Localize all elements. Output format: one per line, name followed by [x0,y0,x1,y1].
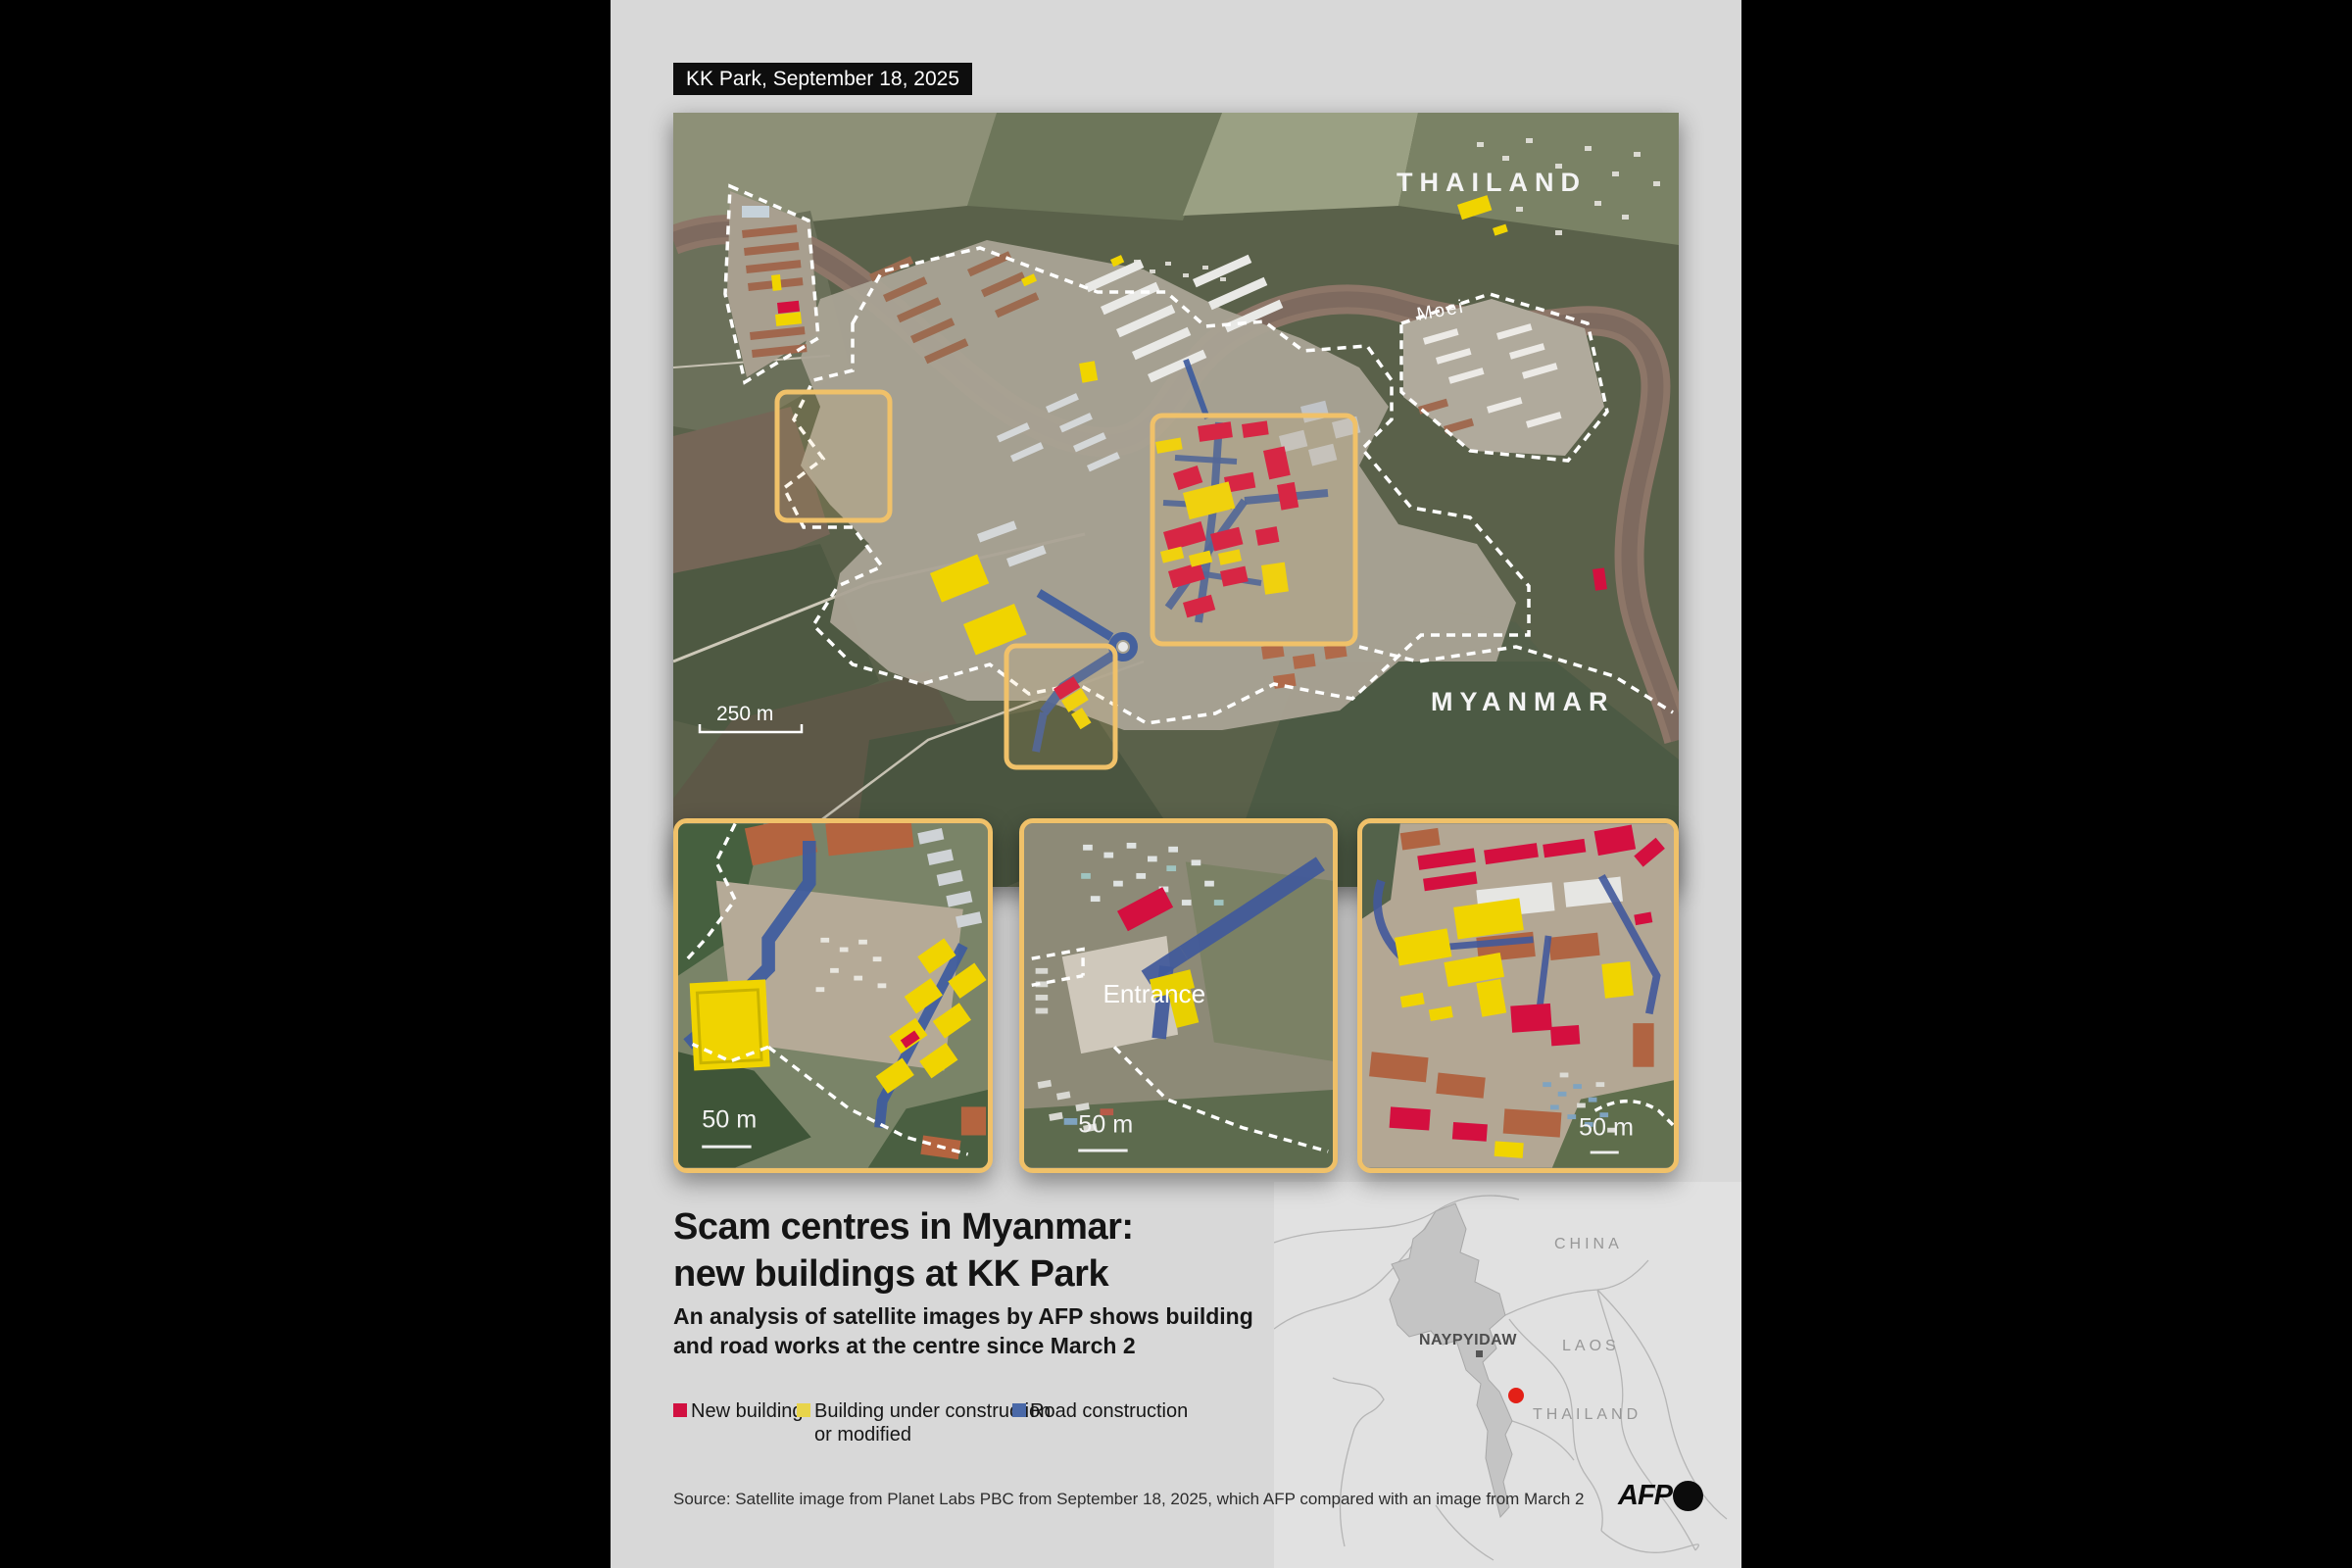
label-myanmar: MYANMAR [1431,687,1615,716]
locator-label-laos: LAOS [1562,1338,1620,1354]
zoom-box-1 [777,392,890,520]
label-thailand: THAILAND [1396,168,1587,197]
roundabout-center [1118,642,1128,652]
svg-text:250 m: 250 m [716,703,773,725]
legend-swatch-blue [1012,1403,1026,1417]
legend-swatch-red [673,1403,687,1417]
zoom-box-3 [1152,416,1355,644]
locator-label-naypyidaw: NAYPYIDAW [1419,1332,1517,1348]
page-subtitle: An analysis of satellite images by AFP s… [673,1301,1253,1360]
inset-zoom-3: 50 m [1357,818,1679,1173]
inset-zoom-1: 50 m [673,818,993,1173]
svg-text:50 m: 50 m [702,1106,757,1134]
kk-park-location-dot [1508,1388,1524,1403]
legend-label-new-building: New building [691,1399,804,1423]
source-line: Source: Satellite image from Planet Labs… [673,1490,1584,1509]
subtitle-line-1: An analysis of satellite images by AFP s… [673,1301,1253,1331]
legend: New building Building under construction… [673,1399,1359,1458]
infographic-stage: KK Park, September 18, 2025 [0,0,2352,1568]
svg-text:50 m: 50 m [1579,1114,1634,1142]
date-label: KK Park, September 18, 2025 [673,63,972,95]
locator-label-thailand: THAILAND [1533,1406,1641,1423]
title-line-2: new buildings at KK Park [673,1250,1134,1298]
title-line-1: Scam centres in Myanmar: [673,1203,1134,1250]
inset2-entrance-label: Entrance [1102,979,1205,1008]
afp-logo-text: AFP [1618,1480,1672,1512]
capital-dot [1476,1350,1483,1357]
legend-label-road-construction: Road construction [1030,1399,1188,1423]
subtitle-line-2: and road works at the centre since March… [673,1331,1253,1360]
afp-logo: AFP [1618,1480,1703,1512]
inset-zoom-2: Entrance 50 m [1019,818,1338,1173]
main-satellite-map: THAILAND MYANMAR Moei 250 m [673,113,1679,887]
afp-logo-circle [1673,1481,1703,1511]
svg-text:50 m: 50 m [1078,1111,1133,1139]
zoom-box-2 [1006,646,1115,767]
main-map-canvas: THAILAND MYANMAR Moei 250 m [673,113,1679,887]
infographic-page: KK Park, September 18, 2025 [611,0,1741,1568]
page-title: Scam centres in Myanmar: new buildings a… [673,1203,1134,1298]
locator-label-china: CHINA [1554,1236,1623,1252]
legend-swatch-yellow [797,1403,810,1417]
